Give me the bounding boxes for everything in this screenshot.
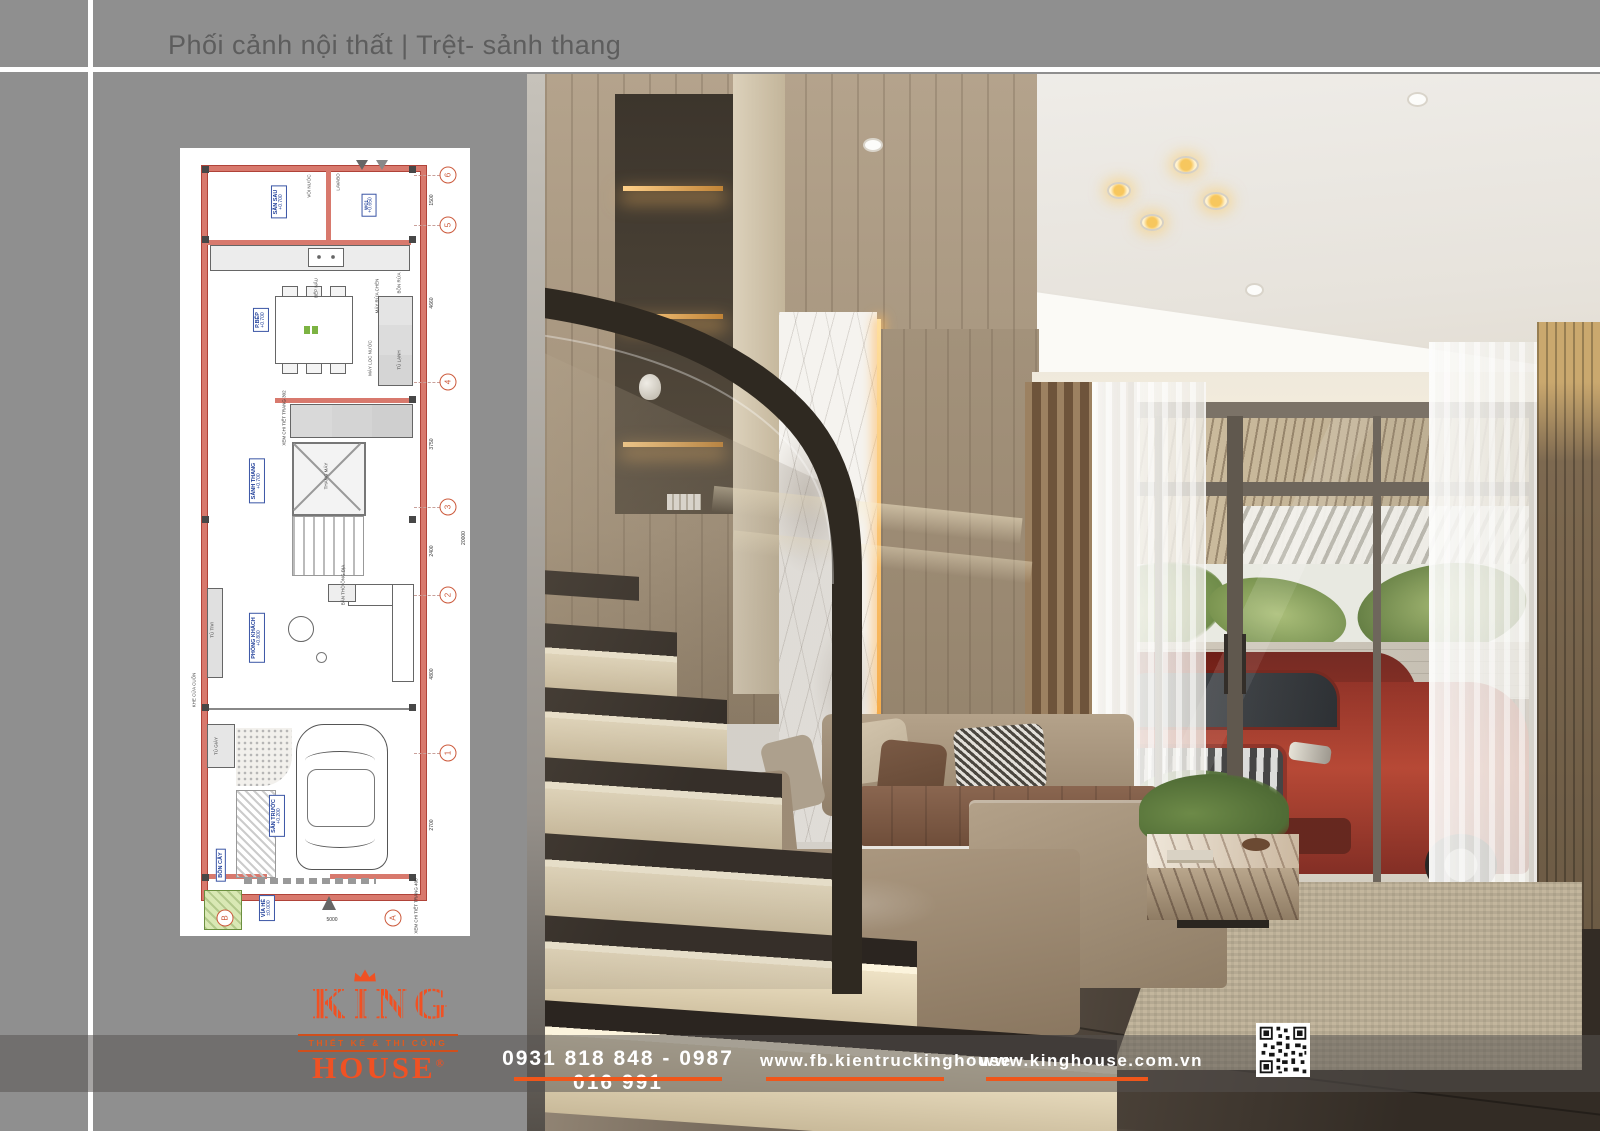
grid-pier <box>409 236 416 243</box>
floor-plan: SÂN SAU+0.700 WC1+0.650 P.BẾP+0.700 SẢNH… <box>180 148 470 936</box>
fixture-label: MÁY RỬA CHÉN <box>375 279 380 314</box>
dining-chair <box>330 363 346 374</box>
logo-tagline: THIẾT KẾ & THI CÔNG <box>298 1038 458 1048</box>
room-level: ±0.000 <box>267 899 273 917</box>
grid-bubble: 2 <box>440 587 457 604</box>
fixture-label: MÁY LỌC NƯỚC <box>368 340 373 376</box>
north-arrow <box>322 896 336 910</box>
plan-sofa <box>392 584 414 682</box>
fixture-label: KHE CỬA CUỐN <box>192 673 197 708</box>
fixture-label: TỦ GIÀY <box>214 737 219 755</box>
grid-bubble: 3 <box>440 499 457 516</box>
fixture-label: THANG MÁY <box>324 463 329 490</box>
dimension: 2700 <box>429 819 435 830</box>
interior-render <box>527 74 1600 1131</box>
dimension-total: 20000 <box>461 531 467 545</box>
logo-brand-house: HOUSE® <box>298 1052 458 1083</box>
grid-bubble: 4 <box>440 374 457 391</box>
coffee-table-plinth <box>1177 920 1269 928</box>
grid-bubble: 6 <box>440 167 457 184</box>
room-label: P.BẾP+0.700 <box>253 308 269 332</box>
fixture-label: BÀN THỜ ÔNG ĐỊA <box>341 565 346 606</box>
niche-led-strip <box>623 186 723 191</box>
downlight-white <box>1407 92 1428 107</box>
grid-pier <box>202 516 209 523</box>
dimension: 2400 <box>429 545 435 556</box>
plan-note: XEM CHI TIẾT TRANG 302 <box>282 390 287 445</box>
footer-facebook: www.fb.kientruckinghouse <box>760 1051 950 1071</box>
room-level: +0.700 <box>279 190 285 215</box>
room-level: +0.700 <box>261 312 267 328</box>
appliance-column <box>378 296 413 386</box>
dining-chair <box>282 286 298 297</box>
room-level: +0.700 <box>257 463 263 500</box>
dining-chair <box>330 286 346 297</box>
plan-car <box>296 724 388 870</box>
grid-pier <box>202 874 209 881</box>
dimension: 4660 <box>429 297 435 308</box>
coffee-table <box>1147 834 1299 928</box>
table-books <box>1167 850 1213 860</box>
grid-pier <box>409 396 416 403</box>
grid-leader <box>414 507 440 508</box>
sofa-pillow-houndstooth <box>953 723 1047 795</box>
room-level: +0.200 <box>277 799 283 833</box>
room-level: +0.800 <box>257 617 263 659</box>
grid-bubble: 5 <box>440 217 457 234</box>
grid-bubble: 1 <box>440 745 457 762</box>
grid-bubble: B <box>217 910 234 927</box>
coffee-table-front <box>1147 868 1299 920</box>
left-divider-line <box>88 0 93 1131</box>
room-label: SÂN TRƯỚC+0.200 <box>269 795 285 837</box>
grid-pier <box>202 704 209 711</box>
room-label: PHÒNG KHÁCH+0.800 <box>249 613 265 663</box>
fixture-label: LAVABO <box>336 173 341 190</box>
dimension-bottom: 5000 <box>326 917 337 923</box>
plan-roller-door-line <box>207 708 411 710</box>
presentation-page: Phối cảnh nội thất | Trệt- sảnh thang <box>0 0 1600 1131</box>
grid-leader <box>414 753 440 754</box>
footer-facebook-underline <box>766 1077 944 1081</box>
cabinet-row <box>290 404 413 438</box>
downlight-warm <box>1203 192 1229 210</box>
grid-pier <box>202 236 209 243</box>
grid-leader <box>414 595 440 596</box>
grid-leader <box>414 225 440 226</box>
logo-house-text: HOUSE <box>312 1050 436 1085</box>
dining-table <box>275 296 353 364</box>
downlight-white <box>863 138 883 152</box>
header-divider-line <box>0 67 1600 72</box>
door-handle <box>1242 634 1246 694</box>
fixture-label: BẾP NẤU <box>314 278 319 298</box>
car-windshield <box>305 751 375 770</box>
stove <box>308 248 344 267</box>
footer-website-underline <box>986 1077 1148 1081</box>
logo-rule-top <box>298 1034 458 1036</box>
fixture-label: VÒI NƯỚC <box>307 174 312 197</box>
grid-pier <box>202 166 209 173</box>
dimension: 1500 <box>429 194 435 205</box>
plan-note: XEM CHI TIẾT TRANG 408 <box>414 878 419 933</box>
car-rear-window <box>305 829 375 848</box>
room-level: +0.650 <box>369 197 375 212</box>
frame-left-edge <box>527 74 545 1131</box>
person-figure <box>316 652 327 663</box>
room-label: VỈA HÈ±0.000 <box>259 895 275 921</box>
plan-partition <box>275 398 411 403</box>
grid-pier <box>409 704 416 711</box>
grid-pier <box>409 166 416 173</box>
grid-leader <box>414 382 440 383</box>
qr-code <box>1256 1022 1310 1078</box>
section-marker <box>376 160 388 170</box>
room-label: BỒN CÂY <box>216 848 226 881</box>
plan-partition <box>326 171 331 241</box>
wood-panel-right <box>1537 322 1600 947</box>
room-label: SẢNH THANG+0.700 <box>249 459 265 504</box>
footer-phone-underline <box>514 1077 722 1081</box>
footer-website: www.kinghouse.com.vn <box>980 1051 1156 1071</box>
dining-chair <box>282 363 298 374</box>
room-label: WC1+0.650 <box>362 193 377 216</box>
car-roof <box>307 769 375 827</box>
downlight-warm <box>1107 182 1131 199</box>
grid-leader <box>414 175 440 176</box>
page-title: Phối cảnh nội thất | Trệt- sảnh thang <box>168 30 621 61</box>
fixture-label: TỦ TIVI <box>210 622 215 637</box>
window-mullion <box>1373 416 1381 908</box>
dining-chair <box>306 363 322 374</box>
plan-coffee-table <box>288 616 314 642</box>
room-label: SÂN SAU+0.700 <box>271 186 287 219</box>
dimension: 4800 <box>429 668 435 679</box>
gate-hatch <box>244 878 376 884</box>
stair-handrail <box>527 254 937 1034</box>
shoe-cabinet <box>207 724 235 768</box>
stair-hatch <box>292 516 364 576</box>
grid-pier <box>409 516 416 523</box>
footer-phone: 0931 818 848 - 0987 016 991 <box>498 1047 738 1095</box>
grid-bubble: A <box>385 910 402 927</box>
door-handle <box>1224 634 1228 694</box>
registered-mark: ® <box>436 1058 444 1070</box>
downlight-warm <box>1173 156 1199 174</box>
downlight-warm <box>1140 214 1164 231</box>
section-marker <box>356 160 368 170</box>
table-tray <box>1242 838 1270 851</box>
fixture-label: TỦ LẠNH <box>397 350 402 369</box>
dimension: 3750 <box>429 438 435 449</box>
logo-flute-stripes <box>312 984 454 1028</box>
fixture-label: BỒN RỬA <box>397 272 402 293</box>
room-name: BỒN CÂY <box>218 852 224 877</box>
downlight-white <box>1245 283 1264 297</box>
